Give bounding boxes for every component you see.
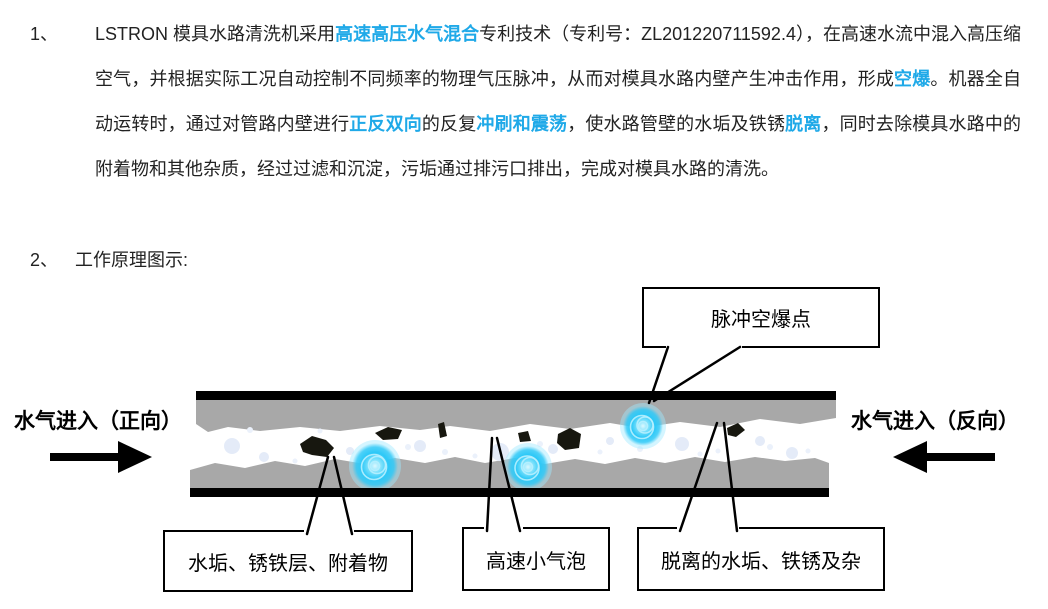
body-text: LSTRON 模具水路清洗机采用 — [95, 24, 335, 44]
reverse-arrow-icon — [893, 441, 995, 473]
highlighted-keyword: 脱离 — [785, 114, 821, 134]
scale-layer-top — [196, 399, 836, 432]
pipe-top-wall — [196, 391, 836, 400]
highlighted-keyword: 空爆 — [894, 69, 930, 89]
label-water-air-forward: 水气进入（正向） — [14, 405, 182, 435]
bubbles — [224, 427, 811, 464]
callout-detached-debris: 脱离的水垢、铁锈及杂 — [637, 527, 885, 591]
section-diagram-title: 工作原理图示: — [75, 238, 188, 283]
callout-scale-rust-layer: 水垢、锈铁层、附着物 — [163, 530, 413, 592]
forward-arrow-icon — [50, 441, 152, 473]
highlighted-keyword: 正反双向 — [349, 114, 422, 134]
cavitation-burst — [620, 403, 666, 449]
debris-particles — [300, 422, 745, 457]
body-text: ，使水路管壁的水垢及铁锈 — [567, 114, 785, 134]
cavitation-burst — [349, 440, 401, 492]
highlighted-keyword: 高速高压水气混合 — [335, 24, 479, 44]
highlighted-keyword: 冲刷和震荡 — [476, 114, 567, 134]
cavitation-burst — [504, 443, 552, 491]
scale-layer-bottom — [190, 457, 829, 489]
document-page: 1、 LSTRON 模具水路清洗机采用高速高压水气混合专利技术（专利号：ZL20… — [0, 0, 1048, 609]
callout-high-speed-bubbles: 高速小气泡 — [462, 527, 610, 591]
list-item-1-number: 1、 — [30, 12, 58, 57]
callout-leader-lines — [307, 347, 740, 534]
body-text: 的反复 — [422, 114, 476, 134]
list-item-2-number: 2、 — [30, 238, 58, 283]
paragraph-working-description: LSTRON 模具水路清洗机采用高速高压水气混合专利技术（专利号：ZL20122… — [95, 12, 1021, 192]
pipe-bottom-wall — [190, 488, 829, 497]
callout-pulse-cavitation-point: 脉冲空爆点 — [642, 287, 880, 348]
label-water-air-reverse: 水气进入（反向） — [851, 405, 1019, 435]
